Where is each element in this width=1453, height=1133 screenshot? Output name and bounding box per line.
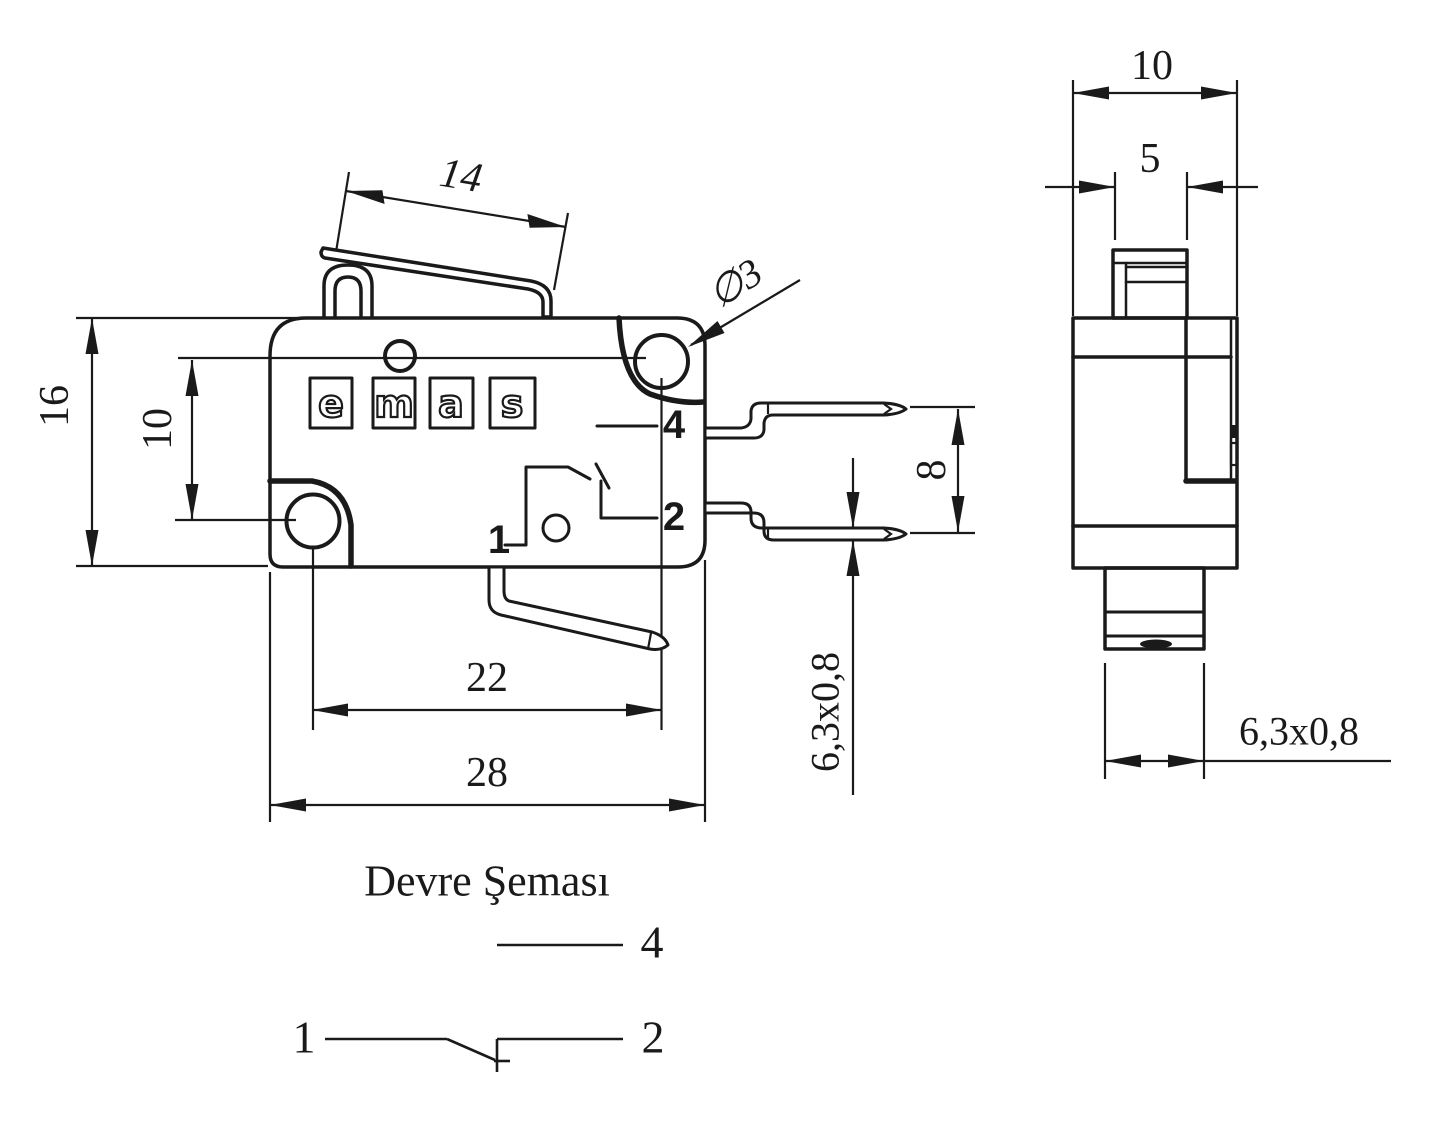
dim-label-plunger-width: 5	[1140, 136, 1161, 182]
dim-label-hole-offset: 10	[135, 408, 181, 450]
dim-height-16: 16	[32, 318, 99, 566]
logo-letter: e	[318, 382, 344, 426]
circuit-title: Devre Şeması	[364, 857, 610, 906]
terminal-2-blade	[705, 503, 906, 540]
molded-pivot-circle	[543, 515, 569, 541]
arrowhead	[527, 214, 566, 228]
brand-logo-emas: e m a s	[310, 378, 535, 428]
terminal-1-blade	[489, 567, 668, 650]
arrowhead	[1187, 181, 1223, 194]
arrowhead	[1105, 755, 1141, 768]
molded-contact-path	[505, 467, 590, 545]
dim-hole-spacing-22: 22	[312, 655, 662, 717]
terminal-blade-outline	[705, 503, 906, 540]
arrowhead	[186, 484, 199, 520]
plunger-hole	[385, 341, 415, 371]
dim-label-hole-diameter: ∅3	[700, 249, 771, 317]
arrowhead	[1073, 87, 1109, 100]
dim-label-terminal-size: 6,3x0,8	[803, 652, 848, 772]
side-terminal-block	[1105, 568, 1204, 649]
arrowhead	[952, 496, 965, 532]
side-terminal-edge-mark	[1231, 443, 1237, 465]
circuit-label-terminal-1: 1	[293, 1012, 316, 1063]
circuit-switch-blade	[447, 1039, 495, 1060]
side-terminal-edge-mark	[1231, 425, 1237, 438]
arrowhead	[1079, 181, 1115, 194]
dim-lever-14: 14	[346, 150, 566, 228]
molded-label-terminal-1: 1	[488, 518, 510, 562]
lever-arm	[321, 248, 551, 317]
arrowhead	[847, 492, 860, 528]
terminal-blade-outline	[705, 403, 906, 438]
dim-side-terminal-size: 6,3x0,8	[1105, 663, 1391, 779]
microswitch-technical-drawing: 14 16 10 22 28	[0, 0, 1453, 1133]
lever-hinge-loop-outer	[324, 265, 372, 317]
drawing-sheet: 14 16 10 22 28	[0, 0, 1453, 1133]
dim-label-side-terminal-size: 6,3x0,8	[1239, 709, 1359, 754]
side-body	[1073, 318, 1237, 568]
logo-letter: a	[438, 382, 464, 426]
dim-label-hole-spacing: 22	[466, 655, 508, 701]
circuit-diagram: Devre Şeması 4 1 2	[293, 857, 665, 1073]
arrowhead	[186, 360, 199, 396]
lever-hinge-loop-inner	[335, 277, 361, 317]
circuit-label-terminal-4: 4	[641, 917, 664, 968]
arrowhead	[1168, 755, 1204, 768]
arrowhead	[86, 318, 99, 354]
dim-hole-diameter: ∅3	[688, 249, 800, 347]
arrowhead	[346, 190, 385, 204]
arrowhead	[847, 540, 860, 576]
arrowhead	[270, 799, 306, 812]
plunger-outline	[1113, 250, 1187, 318]
dim-label-terminal-pitch: 8	[909, 460, 955, 481]
arrowhead	[669, 799, 705, 812]
logo-letter: s	[501, 382, 524, 426]
side-view: 10 5	[1045, 43, 1391, 779]
dim-terminal-pitch-8: 8	[909, 409, 965, 532]
front-view: 14 16 10 22 28	[32, 150, 975, 822]
arrowhead	[952, 409, 965, 445]
dim-label-body-height: 16	[32, 385, 78, 427]
terminal-4-blade	[705, 403, 906, 438]
arrowhead	[1201, 87, 1237, 100]
dim-label-body-width: 28	[466, 750, 508, 796]
side-plunger	[1113, 250, 1187, 318]
molded-label-terminal-4: 4	[663, 403, 686, 447]
dim-label-lever-length: 14	[437, 150, 486, 202]
circuit-label-terminal-2: 2	[642, 1012, 665, 1063]
dim-body-width-28: 28	[270, 750, 705, 812]
dim-terminal-size-vertical: 6,3x0,8	[803, 458, 860, 795]
extension-line	[336, 172, 349, 252]
arrowhead	[626, 704, 662, 717]
logo-letter: m	[374, 382, 414, 426]
molded-label-terminal-2: 2	[663, 495, 685, 539]
dim-hole-offset-10: 10	[135, 360, 199, 520]
terminal-tip-end-view	[1140, 640, 1172, 649]
terminal-blade-outline	[489, 567, 668, 650]
dim-plunger-width-5: 5	[1045, 136, 1258, 240]
arrowhead	[86, 530, 99, 566]
dim-label-body-depth: 10	[1131, 43, 1173, 89]
arrowhead	[312, 704, 348, 717]
